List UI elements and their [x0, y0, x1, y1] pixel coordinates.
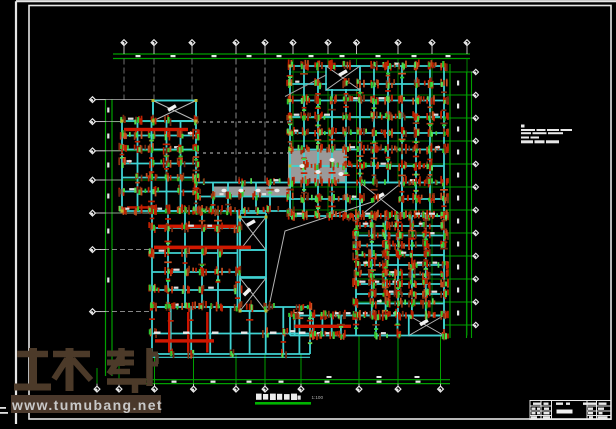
svg-text:1:100: 1:100	[312, 395, 324, 400]
svg-text:www.tumubang.net: www.tumubang.net	[11, 397, 163, 413]
